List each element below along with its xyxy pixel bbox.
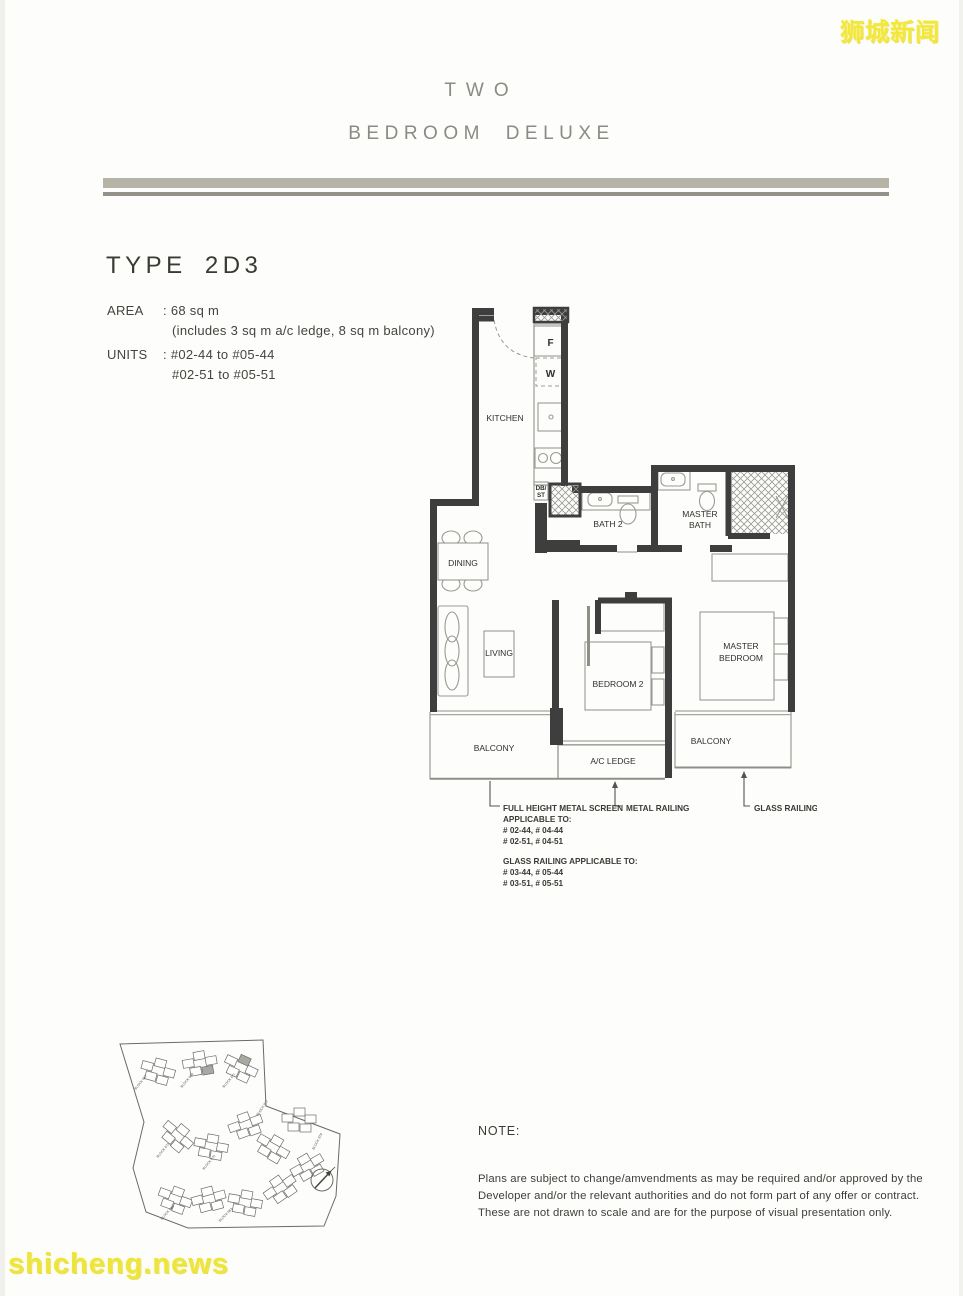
page-title-line2: BEDROOM DELUXE bbox=[0, 123, 963, 145]
svg-text:BLOCK 983: BLOCK 983 bbox=[218, 1207, 234, 1223]
master-bath-fixtures bbox=[658, 470, 790, 534]
unit-type-heading: TYPE 2D3 bbox=[106, 252, 262, 280]
watermark-bottom-left: shicheng.news bbox=[8, 1248, 229, 1281]
bedroom2-bed bbox=[585, 642, 664, 710]
label-ac-ledge: A/C LEDGE bbox=[590, 756, 636, 766]
label-kitchen: KITCHEN bbox=[486, 413, 523, 423]
note-paragraph: Plans are subject to change/amvendments … bbox=[478, 1171, 923, 1223]
units-row-2: #02-51 to #05-51 bbox=[107, 365, 435, 385]
callout-glass-railing: GLASS RAILING bbox=[754, 804, 817, 813]
callout-screen-2: APPLICABLE TO: bbox=[503, 815, 572, 824]
label-living: LIVING bbox=[485, 648, 513, 658]
label-balcony-right: BALCONY bbox=[691, 736, 732, 746]
svg-text:BLOCK 973: BLOCK 973 bbox=[156, 1142, 171, 1159]
bath2-shower bbox=[550, 484, 580, 516]
label-bath2: BATH 2 bbox=[593, 519, 622, 529]
master-wardrobe bbox=[712, 554, 788, 581]
callout-screen-4: # 02-51, # 04-51 bbox=[503, 837, 564, 846]
kitchen-sink bbox=[538, 403, 565, 431]
sofa bbox=[438, 606, 468, 696]
area-row: AREA : 68 sq m bbox=[107, 301, 435, 321]
label-balcony-left: BALCONY bbox=[474, 743, 515, 753]
watermark-top-right: 狮城新闻 bbox=[840, 12, 940, 47]
label-fridge: F bbox=[547, 338, 553, 349]
callout-metal-railing: METAL RAILING bbox=[626, 804, 689, 813]
scan-edge-right bbox=[959, 0, 963, 1296]
bedroom2-wardrobe bbox=[600, 602, 664, 631]
master-bath-toilet bbox=[698, 484, 716, 491]
label-db-1: DB/ bbox=[536, 485, 547, 492]
units-value-1: : #02-44 to #05-44 bbox=[163, 345, 275, 365]
label-master-bedroom-1: MASTER bbox=[723, 641, 758, 651]
vent-hatch bbox=[534, 308, 568, 322]
bath2-toilet bbox=[618, 496, 638, 503]
label-bedroom2: BEDROOM 2 bbox=[592, 679, 643, 689]
area-label: AREA bbox=[107, 301, 163, 321]
bedroom2-sliding-door bbox=[587, 606, 590, 666]
unit-specs: AREA : 68 sq m (includes 3 sq m a/c ledg… bbox=[107, 301, 435, 385]
svg-text:BLOCK 971: BLOCK 971 bbox=[222, 1072, 237, 1089]
callout-glass-1: GLASS RAILING APPLICABLE TO: bbox=[503, 857, 638, 866]
divider-rule bbox=[103, 178, 889, 196]
master-shower bbox=[732, 470, 790, 534]
note-line-1: Plans are subject to change/amvendments … bbox=[478, 1171, 923, 1188]
callout-screen-3: # 02-44, # 04-44 bbox=[503, 826, 564, 835]
svg-text:BLOCK 969: BLOCK 969 bbox=[180, 1072, 195, 1089]
svg-text:BLOCK 967: BLOCK 967 bbox=[134, 1074, 148, 1091]
svg-text:BLOCK 977: BLOCK 977 bbox=[256, 1099, 270, 1116]
label-master-bath-2: BATH bbox=[689, 520, 711, 530]
site-plan: BLOCK 967BLOCK 969BLOCK 971BLOCK 973BLOC… bbox=[100, 1028, 350, 1233]
scan-edge-left bbox=[0, 0, 5, 1296]
label-master-bath-1: MASTER bbox=[682, 509, 717, 519]
note-line-3: These are not drawn to scale and are for… bbox=[478, 1205, 923, 1222]
callout-glass-3: # 03-51, # 05-51 bbox=[503, 879, 564, 888]
page-title-line1: TWO bbox=[0, 80, 963, 102]
area-note: (includes 3 sq m a/c ledge, 8 sq m balco… bbox=[163, 321, 435, 341]
entry-door-arc bbox=[494, 320, 534, 358]
units-value-2: #02-51 to #05-51 bbox=[163, 365, 276, 385]
label-master-bedroom-2: BEDROOM bbox=[719, 653, 763, 663]
callout-leaders bbox=[490, 771, 750, 806]
area-note-row: (includes 3 sq m a/c ledge, 8 sq m balco… bbox=[107, 321, 435, 341]
bath2-basin bbox=[588, 493, 612, 506]
divider-bar-thick bbox=[103, 178, 889, 188]
master-bath-basin bbox=[661, 473, 685, 486]
label-db-2: ST bbox=[537, 492, 545, 499]
area-value: : 68 sq m bbox=[163, 301, 219, 321]
label-dining: DINING bbox=[448, 558, 478, 568]
label-washer: W bbox=[546, 369, 556, 380]
units-row: UNITS : #02-44 to #05-44 bbox=[107, 345, 435, 365]
note-heading: NOTE: bbox=[478, 1124, 520, 1138]
units-label: UNITS bbox=[107, 345, 163, 365]
svg-text:BLOCK 979: BLOCK 979 bbox=[311, 1133, 323, 1151]
callout-glass-2: # 03-44, # 05-44 bbox=[503, 868, 564, 877]
divider-bar-thin bbox=[103, 192, 889, 196]
note-line-2: Developer and/or the relevant authoritie… bbox=[478, 1188, 923, 1205]
callout-screen-1: FULL HEIGHT METAL SCREEN bbox=[503, 804, 623, 813]
floor-plan: KITCHEN BATH 2 MASTER BATH DINING LIVING… bbox=[422, 300, 817, 900]
